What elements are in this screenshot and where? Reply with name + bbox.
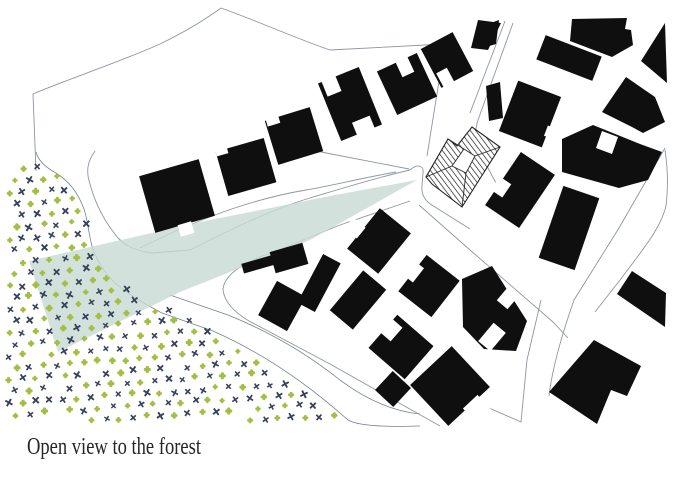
svg-text:Open view to the forest: Open view to the forest [27,433,201,460]
